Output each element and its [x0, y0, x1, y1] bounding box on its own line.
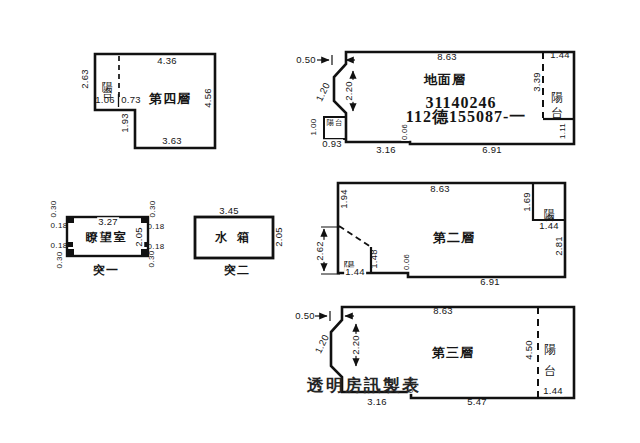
tank-title: 水箱 — [215, 231, 259, 243]
floor4-dim-bottom: 3.63 — [162, 136, 182, 146]
floor2-dim-rt-h: 1.69 — [522, 192, 532, 212]
floor3-dim-bottom2: 5.47 — [467, 397, 487, 407]
tower-dim-edge-r2: 0.18 — [148, 243, 165, 251]
floorplan-document: 4.36 2.63 陽台 1.06 0.73 第四層 4.56 1.93 3.6… — [0, 0, 640, 443]
tower-dim-corner-tr: 0.30 — [149, 201, 157, 218]
floor3-dim-bottom1: 3.16 — [367, 397, 387, 407]
tower-dim-edge-r1: 0.18 — [148, 223, 165, 231]
tank-dim-side: 2.05 — [274, 227, 284, 247]
floor4-title: 第四層 — [149, 92, 191, 105]
floor2-balcony-left-label: 陽台 — [344, 252, 355, 262]
tower-dim-corner-br: 0.30 — [148, 251, 156, 268]
tower-caption: 突一 — [93, 264, 119, 276]
tower-dim-corner-tl: 0.30 — [50, 201, 58, 218]
producer-watermark: 透明房訊製表 — [307, 377, 421, 394]
floor2-dim-bl-w: 1.44 — [344, 267, 366, 277]
tower-dim-side: 2.05 — [134, 226, 144, 248]
floor4-dim-notch: 1.93 — [120, 113, 130, 133]
tank-dim-top: 3.45 — [219, 206, 239, 216]
floor4-balcony-label: 陽台 — [102, 73, 113, 85]
floor4-dim-w2: 0.73 — [121, 95, 141, 105]
tower-dim-top: 3.27 — [97, 217, 119, 227]
ground-dim-bal-r-h: 3.39 — [532, 72, 542, 92]
floor4-dim-left: 2.63 — [80, 69, 90, 89]
floor2-dim-bl-h: 1.48 — [369, 249, 379, 269]
tank-caption: 突二 — [224, 264, 250, 276]
floor2-dim-gap: 0.06 — [403, 253, 411, 271]
floor4-dim-right: 4.56 — [203, 88, 213, 108]
ground-dim-bottom-right: 1.11 — [559, 123, 567, 139]
floor2-balcony-right-label: 陽台 — [544, 200, 555, 210]
ground-dim-top: 8.63 — [437, 52, 457, 62]
floor3-dim-right-h: 4.50 — [524, 340, 534, 360]
floor3-balcony-label: 陽台 — [544, 335, 556, 375]
floor3-title: 第三層 — [432, 346, 474, 359]
ground-registration-2: 112德155087-一 — [406, 109, 526, 125]
ground-title: 地面層 — [424, 73, 466, 86]
tower-dim-edge-l1: 0.18 — [51, 222, 68, 230]
floor4-dim-top: 4.36 — [157, 56, 177, 66]
ground-dim-offset: 0.50 — [296, 55, 316, 65]
floor2-dim-left: 2.62 — [315, 240, 325, 262]
tower-dim-corner-bl: 0.30 — [56, 252, 64, 269]
ground-dim-bal-h: 1.00 — [310, 119, 318, 136]
floor3-dim-top: 8.63 — [433, 306, 453, 316]
ground-balcony-right-label: 陽台 — [551, 83, 563, 111]
tower-dim-edge-l2: 0.18 — [51, 242, 68, 250]
tower-title: 瞭望室 — [86, 231, 128, 243]
ground-balcony-small-label: 陽台 — [327, 119, 344, 127]
floor3-dim-hstep: 2.20 — [351, 334, 361, 356]
floor2-dim-left-top: 1.94 — [339, 189, 349, 209]
floor3-dim-offset: 0.50 — [295, 311, 315, 321]
ground-dim-bottom1: 3.16 — [376, 145, 396, 155]
floor2-dim-rt-w: 1.44 — [538, 221, 560, 231]
ground-dim-gap: 0.06 — [401, 123, 409, 141]
floor2-dim-top: 8.63 — [430, 184, 450, 194]
floor4-dim-w1: 1.06 — [95, 95, 115, 105]
ground-dim-bal-w: 0.93 — [321, 139, 343, 149]
floor2-dim-right: 2.81 — [554, 236, 564, 256]
floor2-title: 第二層 — [433, 231, 475, 244]
ground-dim-top-right: 1.44 — [550, 50, 570, 60]
floor3-dim-bottom-right: 1.44 — [542, 386, 564, 396]
floor2-dim-bottom: 6.91 — [480, 277, 500, 287]
ground-dim-bottom2: 6.91 — [482, 145, 502, 155]
ground-dim-hstep: 2.20 — [344, 80, 354, 102]
